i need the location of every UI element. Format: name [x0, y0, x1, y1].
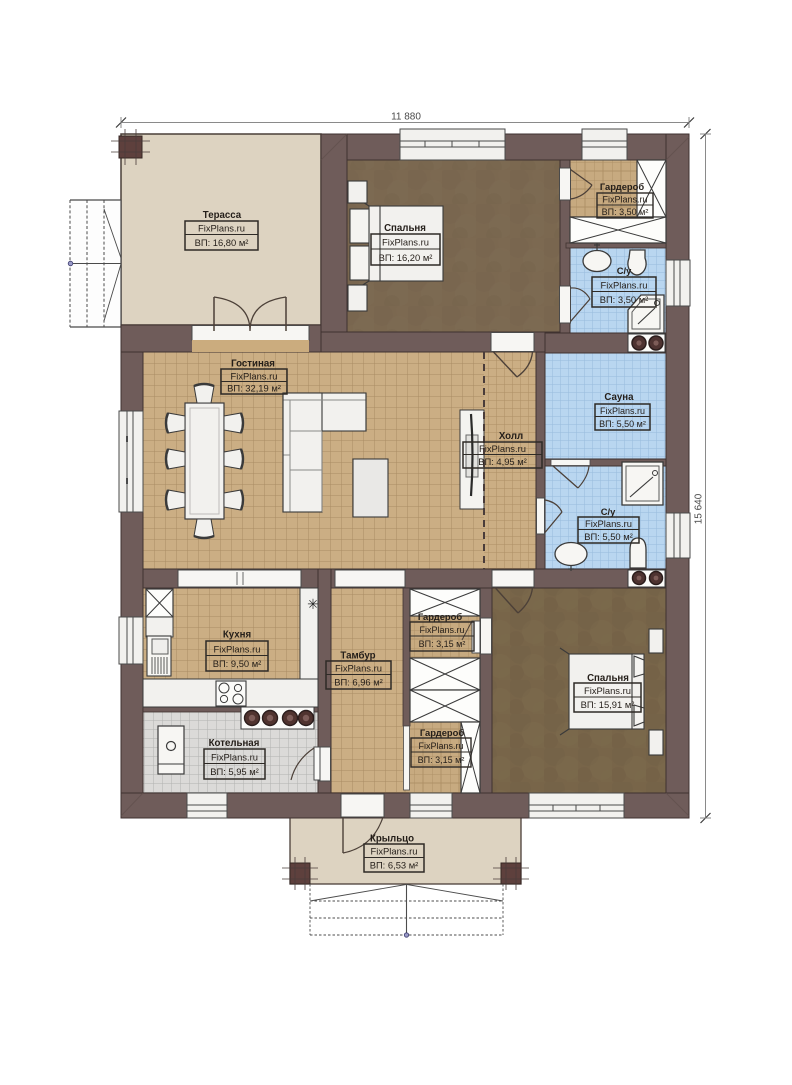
svg-text:Гардероб: Гардероб: [420, 727, 465, 738]
svg-text:FixPlans.ru: FixPlans.ru: [602, 195, 647, 205]
svg-text:Котельная: Котельная: [209, 738, 260, 749]
svg-text:ВП: 15,91 м²: ВП: 15,91 м²: [581, 699, 635, 710]
svg-text:ВП: 4,95 м²: ВП: 4,95 м²: [478, 456, 527, 467]
svg-text:ВП: 3,50 м²: ВП: 3,50 м²: [602, 207, 649, 217]
svg-text:FixPlans.ru: FixPlans.ru: [601, 280, 648, 291]
svg-text:FixPlans.ru: FixPlans.ru: [371, 846, 418, 857]
svg-text:15 640: 15 640: [694, 493, 705, 524]
svg-text:FixPlans.ru: FixPlans.ru: [585, 518, 632, 529]
svg-text:FixPlans.ru: FixPlans.ru: [335, 663, 382, 674]
svg-text:FixPlans.ru: FixPlans.ru: [584, 685, 631, 696]
svg-text:Гардероб: Гардероб: [418, 611, 463, 622]
svg-text:Гостиная: Гостиная: [231, 359, 275, 370]
svg-text:ВП: 5,50 м²: ВП: 5,50 м²: [599, 419, 646, 429]
svg-text:ВП: 9,50 м²: ВП: 9,50 м²: [213, 658, 262, 669]
svg-text:ВП: 16,20 м²: ВП: 16,20 м²: [379, 252, 433, 263]
svg-text:FixPlans.ru: FixPlans.ru: [231, 371, 278, 382]
svg-text:FixPlans.ru: FixPlans.ru: [214, 644, 261, 655]
svg-text:ВП: 6,96 м²: ВП: 6,96 м²: [334, 677, 383, 688]
svg-text:FixPlans.ru: FixPlans.ru: [419, 625, 464, 635]
svg-text:Крыльцо: Крыльцо: [370, 834, 414, 845]
svg-text:FixPlans.ru: FixPlans.ru: [600, 406, 645, 416]
svg-text:FixPlans.ru: FixPlans.ru: [479, 443, 526, 454]
svg-text:FixPlans.ru: FixPlans.ru: [198, 223, 245, 234]
svg-text:Кухня: Кухня: [223, 630, 251, 641]
svg-text:Терасса: Терасса: [203, 210, 242, 221]
svg-text:ВП: 16,80 м²: ВП: 16,80 м²: [195, 237, 249, 248]
svg-text:С/у: С/у: [601, 506, 616, 517]
svg-text:ВП: 3,15 м²: ВП: 3,15 м²: [419, 639, 466, 649]
svg-text:ВП: 5,95 м²: ВП: 5,95 м²: [210, 766, 259, 777]
svg-text:Тамбур: Тамбур: [340, 651, 375, 662]
svg-text:ВП: 3,50 м²: ВП: 3,50 м²: [600, 294, 649, 305]
svg-text:ВП: 32,19 м²: ВП: 32,19 м²: [227, 383, 281, 394]
svg-text:Сауна: Сауна: [604, 392, 634, 403]
svg-text:ВП: 3,15 м²: ВП: 3,15 м²: [418, 755, 465, 765]
svg-text:С/у: С/у: [617, 265, 632, 276]
svg-text:11 880: 11 880: [391, 112, 421, 123]
svg-text:✳: ✳: [307, 596, 319, 612]
svg-text:Гардероб: Гардероб: [600, 181, 645, 192]
svg-text:Холл: Холл: [499, 431, 523, 442]
svg-text:FixPlans.ru: FixPlans.ru: [382, 237, 429, 248]
svg-text:FixPlans.ru: FixPlans.ru: [211, 752, 258, 763]
svg-text:FixPlans.ru: FixPlans.ru: [418, 741, 463, 751]
svg-text:ВП: 6,53 м²: ВП: 6,53 м²: [370, 860, 419, 871]
svg-text:Спальня: Спальня: [384, 223, 426, 234]
svg-text:ВП: 5,50 м²: ВП: 5,50 м²: [584, 531, 633, 542]
